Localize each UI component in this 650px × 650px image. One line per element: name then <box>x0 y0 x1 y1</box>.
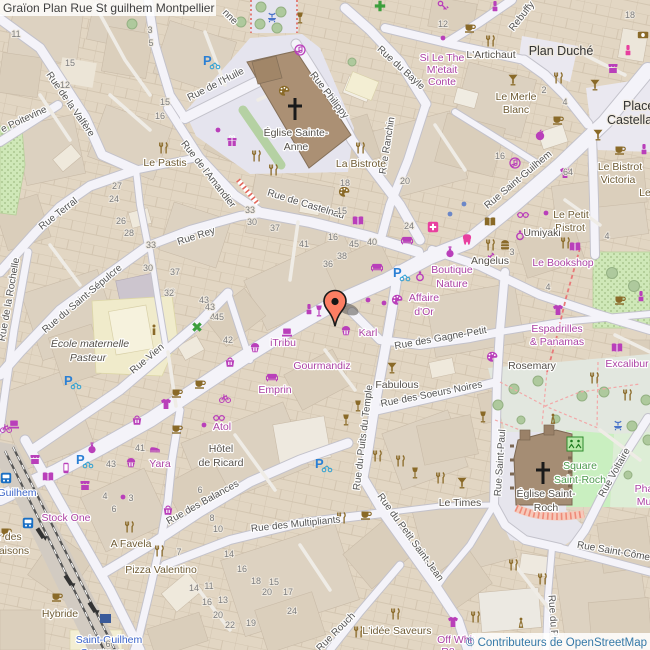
svg-text:45: 45 <box>214 312 224 322</box>
svg-text:L'Artichaut: L'Artichaut <box>466 49 515 61</box>
svg-text:& Panamas: & Panamas <box>530 336 584 348</box>
svg-text:14: 14 <box>189 583 199 593</box>
svg-text:33: 33 <box>245 205 255 215</box>
svg-text:Pizza Valentino: Pizza Valentino <box>125 564 197 576</box>
svg-text:Affaire: Affaire <box>409 292 439 304</box>
svg-text:Boutique: Boutique <box>431 264 473 276</box>
svg-text:Place: Place <box>623 99 650 113</box>
svg-text:Fabulous: Fabulous <box>375 379 418 391</box>
svg-text:30: 30 <box>247 217 257 227</box>
svg-text:Hybride: Hybride <box>42 608 78 620</box>
svg-text:5: 5 <box>148 38 153 48</box>
svg-text:18: 18 <box>625 10 635 20</box>
svg-text:Saint-Roch: Saint-Roch <box>554 474 606 486</box>
svg-text:37: 37 <box>170 267 180 277</box>
svg-text:Excalibur: Excalibur <box>605 358 649 370</box>
svg-text:43: 43 <box>106 459 116 469</box>
svg-text:M'etait: M'etait <box>427 64 458 76</box>
svg-text:aisons: aisons <box>0 545 29 557</box>
svg-text:Graïon Plan Rue St guilhem Mon: Graïon Plan Rue St guilhem Montpellier <box>3 1 214 15</box>
svg-text:16: 16 <box>328 232 338 242</box>
svg-text:37: 37 <box>270 223 280 233</box>
svg-text:L'idée Saveurs: L'idée Saveurs <box>362 625 431 637</box>
svg-text:Église Sainte-: Église Sainte- <box>264 126 329 139</box>
svg-text:Atol: Atol <box>213 421 231 433</box>
svg-text:Si Le The: Si Le The <box>420 52 465 64</box>
svg-text:24: 24 <box>404 221 414 231</box>
svg-text:4: 4 <box>562 97 567 107</box>
svg-text:Blanc: Blanc <box>503 104 529 116</box>
svg-text:32: 32 <box>164 288 174 298</box>
svg-text:18: 18 <box>251 576 261 586</box>
svg-text:64: 64 <box>563 167 573 177</box>
svg-text:Guilhem: Guilhem <box>0 487 37 499</box>
svg-text:Yara: Yara <box>149 458 171 470</box>
svg-text:12: 12 <box>60 80 70 90</box>
svg-text:3: 3 <box>147 25 152 35</box>
svg-text:Église Saint-: Église Saint- <box>517 487 576 500</box>
svg-text:Rosemary: Rosemary <box>508 360 557 372</box>
svg-text:40: 40 <box>367 237 377 247</box>
svg-text:13: 13 <box>218 595 228 605</box>
svg-text:Roch: Roch <box>534 502 559 514</box>
svg-text:8: 8 <box>209 513 214 523</box>
svg-text:Umiyaki: Umiyaki <box>523 227 560 239</box>
svg-text:r des: r des <box>0 531 22 543</box>
svg-text:11: 11 <box>11 29 20 39</box>
svg-text:24: 24 <box>287 606 297 616</box>
svg-text:de Ricard: de Ricard <box>199 457 244 469</box>
svg-text:20: 20 <box>213 610 223 620</box>
svg-text:4: 4 <box>102 491 107 501</box>
svg-text:Nature: Nature <box>436 278 468 290</box>
svg-text:43: 43 <box>205 302 215 312</box>
svg-text:11: 11 <box>204 581 213 591</box>
svg-text:20: 20 <box>262 587 272 597</box>
svg-text:Pha: Pha <box>635 483 650 495</box>
svg-text:Le Bistrot: Le Bistrot <box>598 161 642 173</box>
svg-text:15: 15 <box>337 206 347 216</box>
svg-text:Victoria: Victoria <box>601 174 636 186</box>
svg-text:Square: Square <box>563 460 597 472</box>
svg-text:17: 17 <box>283 587 293 597</box>
svg-text:33: 33 <box>146 240 156 250</box>
svg-text:Emprin: Emprin <box>258 384 291 396</box>
svg-text:A Favela: A Favela <box>111 538 152 550</box>
svg-text:22: 22 <box>225 620 235 630</box>
svg-text:3: 3 <box>128 493 133 503</box>
svg-text:15: 15 <box>160 97 170 107</box>
svg-text:28: 28 <box>124 228 134 238</box>
svg-text:18: 18 <box>340 178 350 188</box>
svg-text:16: 16 <box>237 564 247 574</box>
svg-text:12: 12 <box>438 19 448 29</box>
svg-text:Stock One: Stock One <box>41 512 90 524</box>
svg-text:Le Bookshop: Le Bookshop <box>532 257 593 269</box>
svg-text:19: 19 <box>246 618 256 628</box>
svg-text:Espadrilles: Espadrilles <box>531 323 582 335</box>
svg-text:4: 4 <box>604 231 609 241</box>
svg-text:La Bistrote: La Bistrote <box>336 158 386 170</box>
svg-text:27: 27 <box>112 181 122 191</box>
svg-text:Le Times: Le Times <box>439 497 482 509</box>
svg-text:iTribu: iTribu <box>270 337 296 349</box>
svg-text:42: 42 <box>223 335 233 345</box>
svg-text:Conte: Conte <box>428 76 456 88</box>
svg-text:Anne: Anne <box>284 141 309 153</box>
svg-text:Angelus: Angelus <box>471 255 509 267</box>
svg-text:Karl: Karl <box>359 327 378 339</box>
svg-text:7: 7 <box>176 547 181 557</box>
svg-text:Le Petit: Le Petit <box>553 209 589 221</box>
svg-text:Le Pastis: Le Pastis <box>143 157 186 169</box>
svg-text:3: 3 <box>509 247 514 257</box>
svg-text:6: 6 <box>105 639 110 649</box>
svg-text:6: 6 <box>111 504 116 514</box>
svg-text:d'Or: d'Or <box>414 306 434 318</box>
svg-text:R8: R8 <box>441 646 455 650</box>
svg-text:Le Merle: Le Merle <box>496 91 537 103</box>
svg-text:Hôtel: Hôtel <box>209 443 234 455</box>
svg-text:Gourmandiz: Gourmandiz <box>293 360 350 372</box>
svg-text:4: 4 <box>545 282 550 292</box>
svg-text:2: 2 <box>541 85 546 95</box>
svg-text:16: 16 <box>202 597 212 607</box>
svg-text:20: 20 <box>400 176 410 186</box>
svg-text:26: 26 <box>116 216 126 226</box>
svg-text:14: 14 <box>224 549 234 559</box>
svg-text:Castellane: Castellane <box>607 113 650 127</box>
svg-text:Mu: Mu <box>637 496 650 508</box>
svg-text:24: 24 <box>109 194 119 204</box>
svg-text:15: 15 <box>65 58 75 68</box>
svg-text:Le: Le <box>639 187 650 199</box>
svg-text:41: 41 <box>135 443 145 453</box>
svg-text:6: 6 <box>197 485 202 495</box>
svg-text:16: 16 <box>155 111 165 121</box>
svg-text:© Contributeurs de OpenStreetM: © Contributeurs de OpenStreetMap <box>466 637 647 649</box>
svg-text:30: 30 <box>143 263 153 273</box>
svg-text:16: 16 <box>495 151 505 161</box>
svg-text:45: 45 <box>349 239 359 249</box>
svg-text:Pasteur: Pasteur <box>70 352 107 364</box>
svg-text:41: 41 <box>299 239 309 249</box>
svg-text:École maternelle: École maternelle <box>51 337 129 350</box>
svg-text:15: 15 <box>269 577 279 587</box>
svg-text:36: 36 <box>323 259 333 269</box>
svg-text:Plan Duché: Plan Duché <box>529 44 594 58</box>
svg-text:10: 10 <box>213 524 223 534</box>
svg-text:38: 38 <box>337 251 347 261</box>
